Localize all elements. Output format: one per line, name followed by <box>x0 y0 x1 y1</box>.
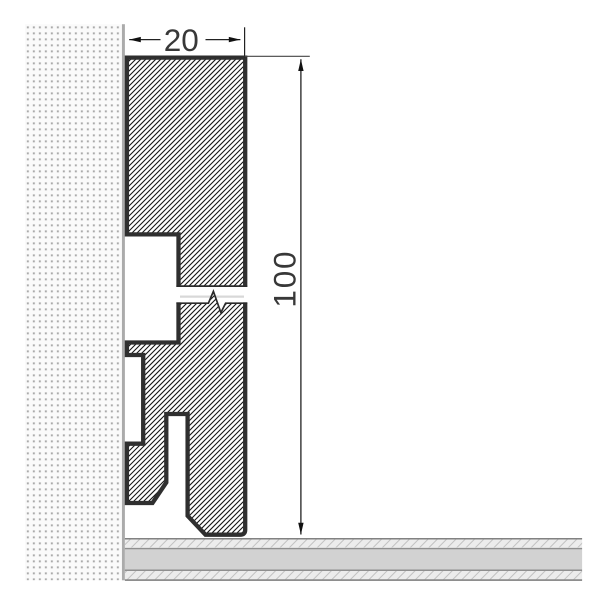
svg-text:20: 20 <box>164 22 199 58</box>
svg-text:100: 100 <box>266 250 302 308</box>
